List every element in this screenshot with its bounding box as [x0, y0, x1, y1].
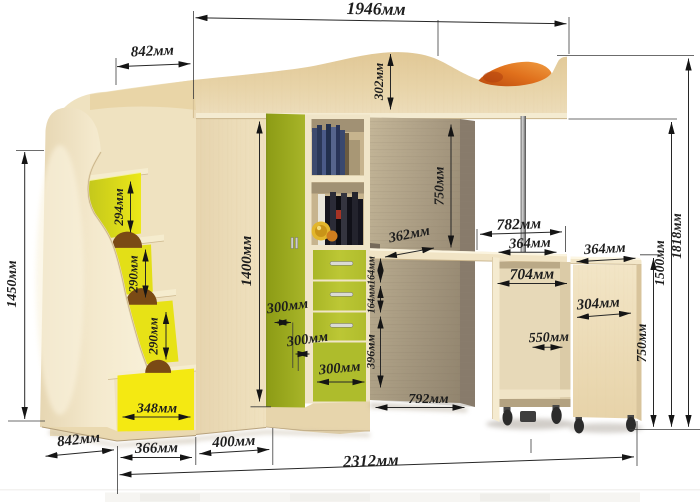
svg-text:396мм: 396мм — [364, 334, 378, 369]
svg-text:750мм: 750мм — [432, 167, 447, 206]
svg-text:290мм: 290мм — [146, 317, 161, 355]
svg-text:302мм: 302мм — [371, 63, 386, 101]
svg-text:290мм: 290мм — [126, 255, 141, 293]
svg-text:164мм: 164мм — [367, 285, 378, 314]
svg-text:294мм: 294мм — [111, 188, 126, 226]
svg-text:1450мм: 1450мм — [5, 260, 20, 308]
svg-text:366мм: 366мм — [134, 440, 178, 457]
svg-text:364мм: 364мм — [508, 235, 551, 252]
svg-text:1946мм: 1946мм — [346, 0, 405, 19]
svg-text:1500мм: 1500мм — [652, 240, 667, 286]
svg-text:1400мм: 1400мм — [239, 236, 255, 287]
svg-text:364мм: 364мм — [583, 240, 626, 258]
svg-text:1818мм: 1818мм — [669, 213, 684, 259]
svg-text:400мм: 400мм — [211, 433, 256, 451]
svg-text:2312мм: 2312мм — [342, 450, 399, 471]
svg-text:164мм: 164мм — [367, 256, 378, 285]
svg-text:304мм: 304мм — [575, 295, 620, 314]
svg-text:348мм: 348мм — [136, 402, 178, 417]
svg-text:792мм: 792мм — [408, 392, 449, 407]
svg-text:704мм: 704мм — [510, 266, 555, 284]
svg-text:750мм: 750мм — [634, 324, 649, 363]
svg-text:782мм: 782мм — [496, 215, 541, 234]
svg-text:550мм: 550мм — [529, 330, 570, 346]
svg-text:842мм: 842мм — [130, 43, 174, 61]
